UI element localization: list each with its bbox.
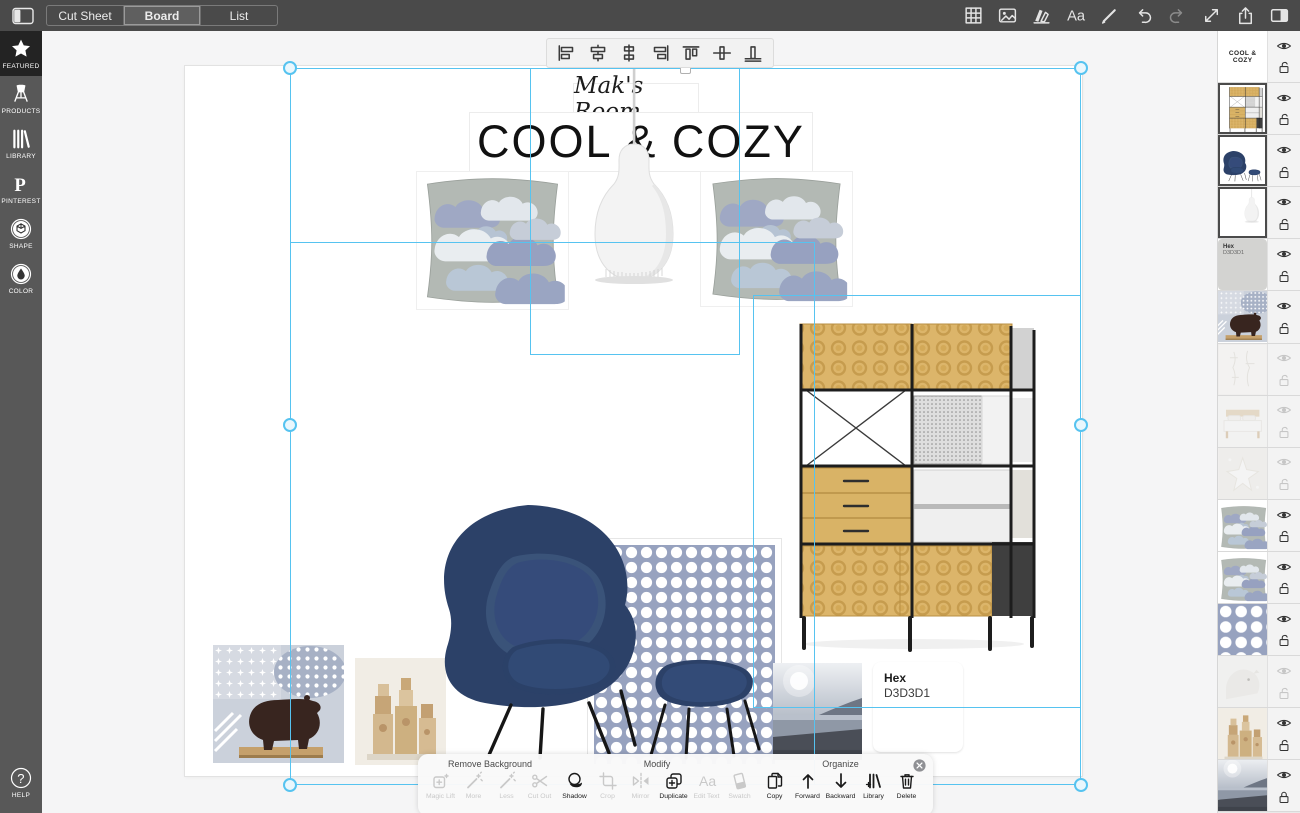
layer-row-starfish-fabric[interactable] [1218, 448, 1300, 500]
cut-out-button: Cut Out [523, 771, 556, 800]
panels-icon[interactable] [1269, 5, 1290, 26]
lock-open-icon[interactable] [1276, 60, 1292, 74]
toolbar-item-label: Library [863, 793, 884, 800]
layer-row-womb-chair[interactable] [1218, 135, 1300, 187]
eye-icon[interactable] [1276, 403, 1292, 417]
lock-open-icon[interactable] [1276, 373, 1292, 387]
pinterest-icon: P [10, 173, 32, 195]
layer-row-dot-fabric[interactable] [1218, 604, 1300, 656]
toolbar-section-items: ShadowCropMirrorDuplicateAaEdit TextSwat… [558, 771, 756, 800]
eye-icon[interactable] [1276, 455, 1292, 469]
eye-icon[interactable] [1276, 612, 1292, 626]
eye-icon[interactable] [1276, 351, 1292, 365]
layer-row-polar-bear[interactable] [1218, 656, 1300, 708]
sidebar-item-label: FEATURED [3, 63, 40, 70]
toolbar-item-label: Duplicate [659, 793, 687, 800]
layer-controls [1267, 83, 1300, 134]
sidebar-item-featured[interactable]: FEATURED [0, 31, 42, 76]
swatch-icon [730, 771, 750, 791]
lock-closed-icon[interactable] [1276, 790, 1292, 804]
svg-text:Aa: Aa [699, 773, 716, 789]
layer-controls [1267, 135, 1300, 186]
layer-row-hex-swatch[interactable]: HexD3D3D1 [1218, 239, 1300, 291]
layer-controls [1267, 291, 1300, 342]
close-icon[interactable] [913, 759, 926, 772]
toolbar-section-title: Modify [558, 759, 756, 769]
layer-thumbnail-bear-figurine[interactable] [1218, 291, 1267, 342]
edit-text-icon: Aa [697, 771, 717, 791]
selection-handle-top-left[interactable] [283, 61, 297, 75]
eye-icon[interactable] [1276, 768, 1292, 782]
toolbar-section-title: Remove Background [424, 759, 556, 769]
layer-thumbnail-polar-bear[interactable] [1218, 656, 1267, 707]
layer-thumbnail-shelving-unit[interactable] [1218, 83, 1267, 134]
layer-controls [1267, 656, 1300, 707]
layer-thumbnail-wood-blocks[interactable] [1218, 708, 1267, 759]
selection-handle-bottom-right[interactable] [1074, 778, 1088, 792]
trash-icon [897, 771, 917, 791]
left-sidebar: FEATUREDPRODUCTSLIBRARYPPINTERESTSHAPECO… [0, 31, 42, 813]
top-toolbar-icons: Aa [963, 0, 1290, 31]
layer-row-cloud-pillow-2[interactable] [1218, 552, 1300, 604]
crop-button: Crop [591, 771, 624, 800]
lock-open-icon[interactable] [1276, 165, 1292, 179]
duplicate-icon [664, 771, 684, 791]
toolbar-item-label: Swatch [728, 793, 750, 800]
layer-row-cloud-pillow[interactable] [1218, 500, 1300, 552]
toolbar-item-label: Cut Out [528, 793, 551, 800]
toolbar-item-label: More [466, 793, 482, 800]
mirror-icon [631, 771, 651, 791]
hex-swatch-label: Hex [884, 671, 963, 685]
eye-icon[interactable] [1276, 664, 1292, 678]
layer-thumbnail-sketch[interactable] [1218, 344, 1267, 395]
seascape-image[interactable] [773, 663, 862, 760]
star-icon [10, 38, 32, 60]
layer-controls [1267, 448, 1300, 499]
align-right-icon[interactable] [649, 44, 671, 62]
toolbar-section-remove-background: Remove BackgroundMagic LiftMoreLessCut O… [424, 759, 556, 813]
sidebar-item-help[interactable]: ?HELP [0, 760, 42, 805]
sidebar-item-label: COLOR [9, 288, 34, 295]
magic-lift-icon [431, 771, 451, 791]
draw-icon[interactable] [1099, 5, 1120, 26]
lock-open-icon[interactable] [1276, 269, 1292, 283]
toolbar-item-label: Magic Lift [426, 793, 455, 800]
lock-open-icon[interactable] [1276, 321, 1292, 335]
tab-list[interactable]: List [201, 6, 277, 25]
sidebar-item-color[interactable]: COLOR [0, 256, 42, 301]
eye-icon[interactable] [1276, 39, 1292, 53]
lock-open-icon[interactable] [1276, 425, 1292, 439]
delete-button[interactable]: Delete [890, 771, 923, 800]
cloud-pillow-image[interactable] [416, 171, 569, 310]
toolbar-item-label: Edit Text [694, 793, 720, 800]
view-mode-tabs: Cut SheetBoardList [46, 5, 278, 26]
wand-icon [497, 771, 517, 791]
layer-row-sketch[interactable] [1218, 344, 1300, 396]
layer-controls [1267, 604, 1300, 655]
cube-icon [10, 218, 32, 240]
layer-thumbnail-title-text[interactable]: COOL & COZY [1218, 31, 1267, 82]
layer-controls [1267, 344, 1300, 395]
toolbar-item-label: Crop [600, 793, 615, 800]
forward-button[interactable]: Forward [791, 771, 824, 800]
layer-title-text: COOL & COZY [1218, 31, 1267, 82]
layer-controls [1267, 760, 1300, 811]
text-icon[interactable]: Aa [1065, 5, 1086, 26]
layer-row-pendant-lamp[interactable] [1218, 187, 1300, 239]
layer-row-title-text[interactable]: COOL & COZY [1218, 31, 1300, 83]
alignment-toolbar [546, 38, 774, 68]
layers-panel: COOL & COZYHexD3D3D1 [1217, 31, 1300, 813]
eye-icon[interactable] [1276, 508, 1292, 522]
toolbar-item-label: Forward [795, 793, 820, 800]
layer-controls [1267, 552, 1300, 603]
align-center-h-icon[interactable] [587, 44, 609, 62]
align-top-icon[interactable] [680, 44, 702, 62]
image-icon[interactable] [997, 5, 1018, 26]
top-bar: Cut SheetBoardList Aa [0, 0, 1300, 31]
toolbar-item-label: Less [499, 793, 513, 800]
selection-handle-mid-right[interactable] [1074, 418, 1088, 432]
layer-controls [1267, 500, 1300, 551]
layer-controls [1267, 708, 1300, 759]
crop-icon [598, 771, 618, 791]
layer-thumbnail-seascape[interactable] [1218, 760, 1267, 811]
toolbar-section-organize: OrganizeCopyForwardBackwardLibraryDelete [758, 759, 923, 813]
layer-thumbnail-starfish-fabric[interactable] [1218, 448, 1267, 499]
shadow-button[interactable]: Shadow [558, 771, 591, 800]
duplicate-button[interactable]: Duplicate [657, 771, 690, 800]
lock-open-icon[interactable] [1276, 477, 1292, 491]
layer-row-seascape[interactable] [1218, 760, 1300, 812]
eye-icon[interactable] [1276, 716, 1292, 730]
shelving-unit-image[interactable] [786, 318, 1040, 653]
tab-cut-sheet[interactable]: Cut Sheet [47, 6, 124, 25]
layer-thumbnail-pendant-lamp[interactable] [1218, 187, 1267, 238]
sidebar-item-label: HELP [12, 792, 30, 799]
toolbar-section-modify: ModifyShadowCropMirrorDuplicateAaEdit Te… [558, 759, 756, 813]
layer-thumbnail-bed[interactable] [1218, 396, 1267, 447]
sidebar-toggle-icon[interactable] [12, 7, 34, 25]
toolbar-item-label: Backward [826, 793, 856, 800]
layer-row-bed[interactable] [1218, 396, 1300, 448]
hex-value: D3D3D1 [1223, 250, 1267, 256]
undo-icon[interactable] [1133, 5, 1154, 26]
layer-controls [1267, 239, 1300, 290]
layer-thumbnail-dot-fabric[interactable] [1218, 604, 1267, 655]
eye-icon[interactable] [1276, 560, 1292, 574]
sidebar-item-label: LIBRARY [6, 153, 36, 160]
arrow-up-icon [798, 771, 818, 791]
align-left-icon[interactable] [556, 44, 578, 62]
edit-text-button: AaEdit Text [690, 771, 723, 800]
selection-handle-bottom-left[interactable] [283, 778, 297, 792]
magic-lift-button: Magic Lift [424, 771, 457, 800]
object-toolbar: Remove BackgroundMagic LiftMoreLessCut O… [418, 754, 933, 813]
layer-thumbnail-cloud-pillow-2[interactable] [1218, 552, 1267, 603]
pendant-lamp-image[interactable] [574, 66, 694, 316]
layer-controls [1267, 396, 1300, 447]
redo-icon [1167, 5, 1188, 26]
toolbar-section-items: Magic LiftMoreLessCut Out [424, 771, 556, 800]
toolbar-item-label: Copy [767, 793, 783, 800]
library-add-icon [864, 771, 884, 791]
toolbar-item-label: Delete [897, 793, 917, 800]
layer-controls [1267, 31, 1300, 82]
layer-row-bear-figurine[interactable] [1218, 291, 1300, 343]
sidebar-item-products[interactable]: PRODUCTS [0, 76, 42, 121]
svg-text:Aa: Aa [1067, 9, 1086, 25]
sidebar-item-label: PINTEREST [1, 198, 40, 205]
lock-open-icon[interactable] [1276, 112, 1292, 126]
bear-figurine-image[interactable] [213, 645, 344, 763]
grid-icon[interactable] [963, 5, 984, 26]
cloud-pillow-2-image[interactable] [700, 171, 853, 307]
wand-icon [464, 771, 484, 791]
layer-thumbnail-cloud-pillow[interactable] [1218, 500, 1267, 551]
selection-handle-mid-left[interactable] [283, 418, 297, 432]
sidebar-item-label: SHAPE [9, 243, 33, 250]
womb-chair-image[interactable] [393, 497, 773, 762]
hex-swatch-card[interactable]: Hex D3D3D1 [873, 662, 963, 752]
boards-icon[interactable] [1031, 5, 1052, 26]
sidebar-item-shape[interactable]: SHAPE [0, 211, 42, 256]
toolbar-section-items: CopyForwardBackwardLibraryDelete [758, 771, 923, 800]
lock-open-icon[interactable] [1276, 633, 1292, 647]
sidebar-item-pinterest[interactable]: PPINTEREST [0, 166, 42, 211]
share-icon[interactable] [1235, 5, 1256, 26]
eye-icon[interactable] [1276, 299, 1292, 313]
eye-icon[interactable] [1276, 247, 1292, 261]
layer-thumbnail-hex-swatch[interactable]: HexD3D3D1 [1218, 239, 1267, 290]
question-icon: ? [10, 767, 32, 789]
sidebar-item-library[interactable]: LIBRARY [0, 121, 42, 166]
backward-button[interactable]: Backward [824, 771, 857, 800]
copy-button[interactable]: Copy [758, 771, 791, 800]
lock-open-icon[interactable] [1276, 686, 1292, 700]
resize-icon[interactable] [1201, 5, 1222, 26]
layer-row-shelving-unit[interactable] [1218, 83, 1300, 135]
sidebar-item-label: PRODUCTS [2, 108, 41, 115]
selection-handle-top-right[interactable] [1074, 61, 1088, 75]
canvas-area: Mak's Room COOL & COZY Hex D3D3D1 [42, 31, 1218, 813]
layer-hex-swatch: HexD3D3D1 [1218, 239, 1267, 290]
tab-board[interactable]: Board [124, 6, 201, 25]
layer-controls [1267, 187, 1300, 238]
lock-open-icon[interactable] [1276, 529, 1292, 543]
eye-icon[interactable] [1276, 91, 1292, 105]
lock-open-icon[interactable] [1276, 217, 1292, 231]
distribute-h-icon[interactable] [618, 44, 640, 62]
toolbar-section-title: Organize [758, 759, 923, 769]
layer-thumbnail-womb-chair[interactable] [1218, 135, 1267, 186]
arrow-down-icon [831, 771, 851, 791]
eye-icon[interactable] [1276, 143, 1292, 157]
shadow-icon [565, 771, 585, 791]
copy-icon [765, 771, 785, 791]
scissors-icon [530, 771, 550, 791]
toolbar-item-label: Shadow [562, 793, 587, 800]
mirror-button: Mirror [624, 771, 657, 800]
library-button[interactable]: Library [857, 771, 890, 800]
layer-row-wood-blocks[interactable] [1218, 708, 1300, 760]
eye-icon[interactable] [1276, 195, 1292, 209]
svg-text:P: P [14, 175, 25, 195]
lock-open-icon[interactable] [1276, 738, 1292, 752]
hex-swatch-value: D3D3D1 [884, 686, 963, 700]
align-middle-v-icon[interactable] [711, 44, 733, 62]
more-button: More [457, 771, 490, 800]
books-icon [10, 128, 32, 150]
align-bottom-icon[interactable] [742, 44, 764, 62]
less-button: Less [490, 771, 523, 800]
drop-icon [10, 263, 32, 285]
lock-open-icon[interactable] [1276, 581, 1292, 595]
toolbar-item-label: Mirror [632, 793, 650, 800]
svg-text:?: ? [17, 771, 24, 786]
chair-icon [10, 83, 32, 105]
swatch-button: Swatch [723, 771, 756, 800]
